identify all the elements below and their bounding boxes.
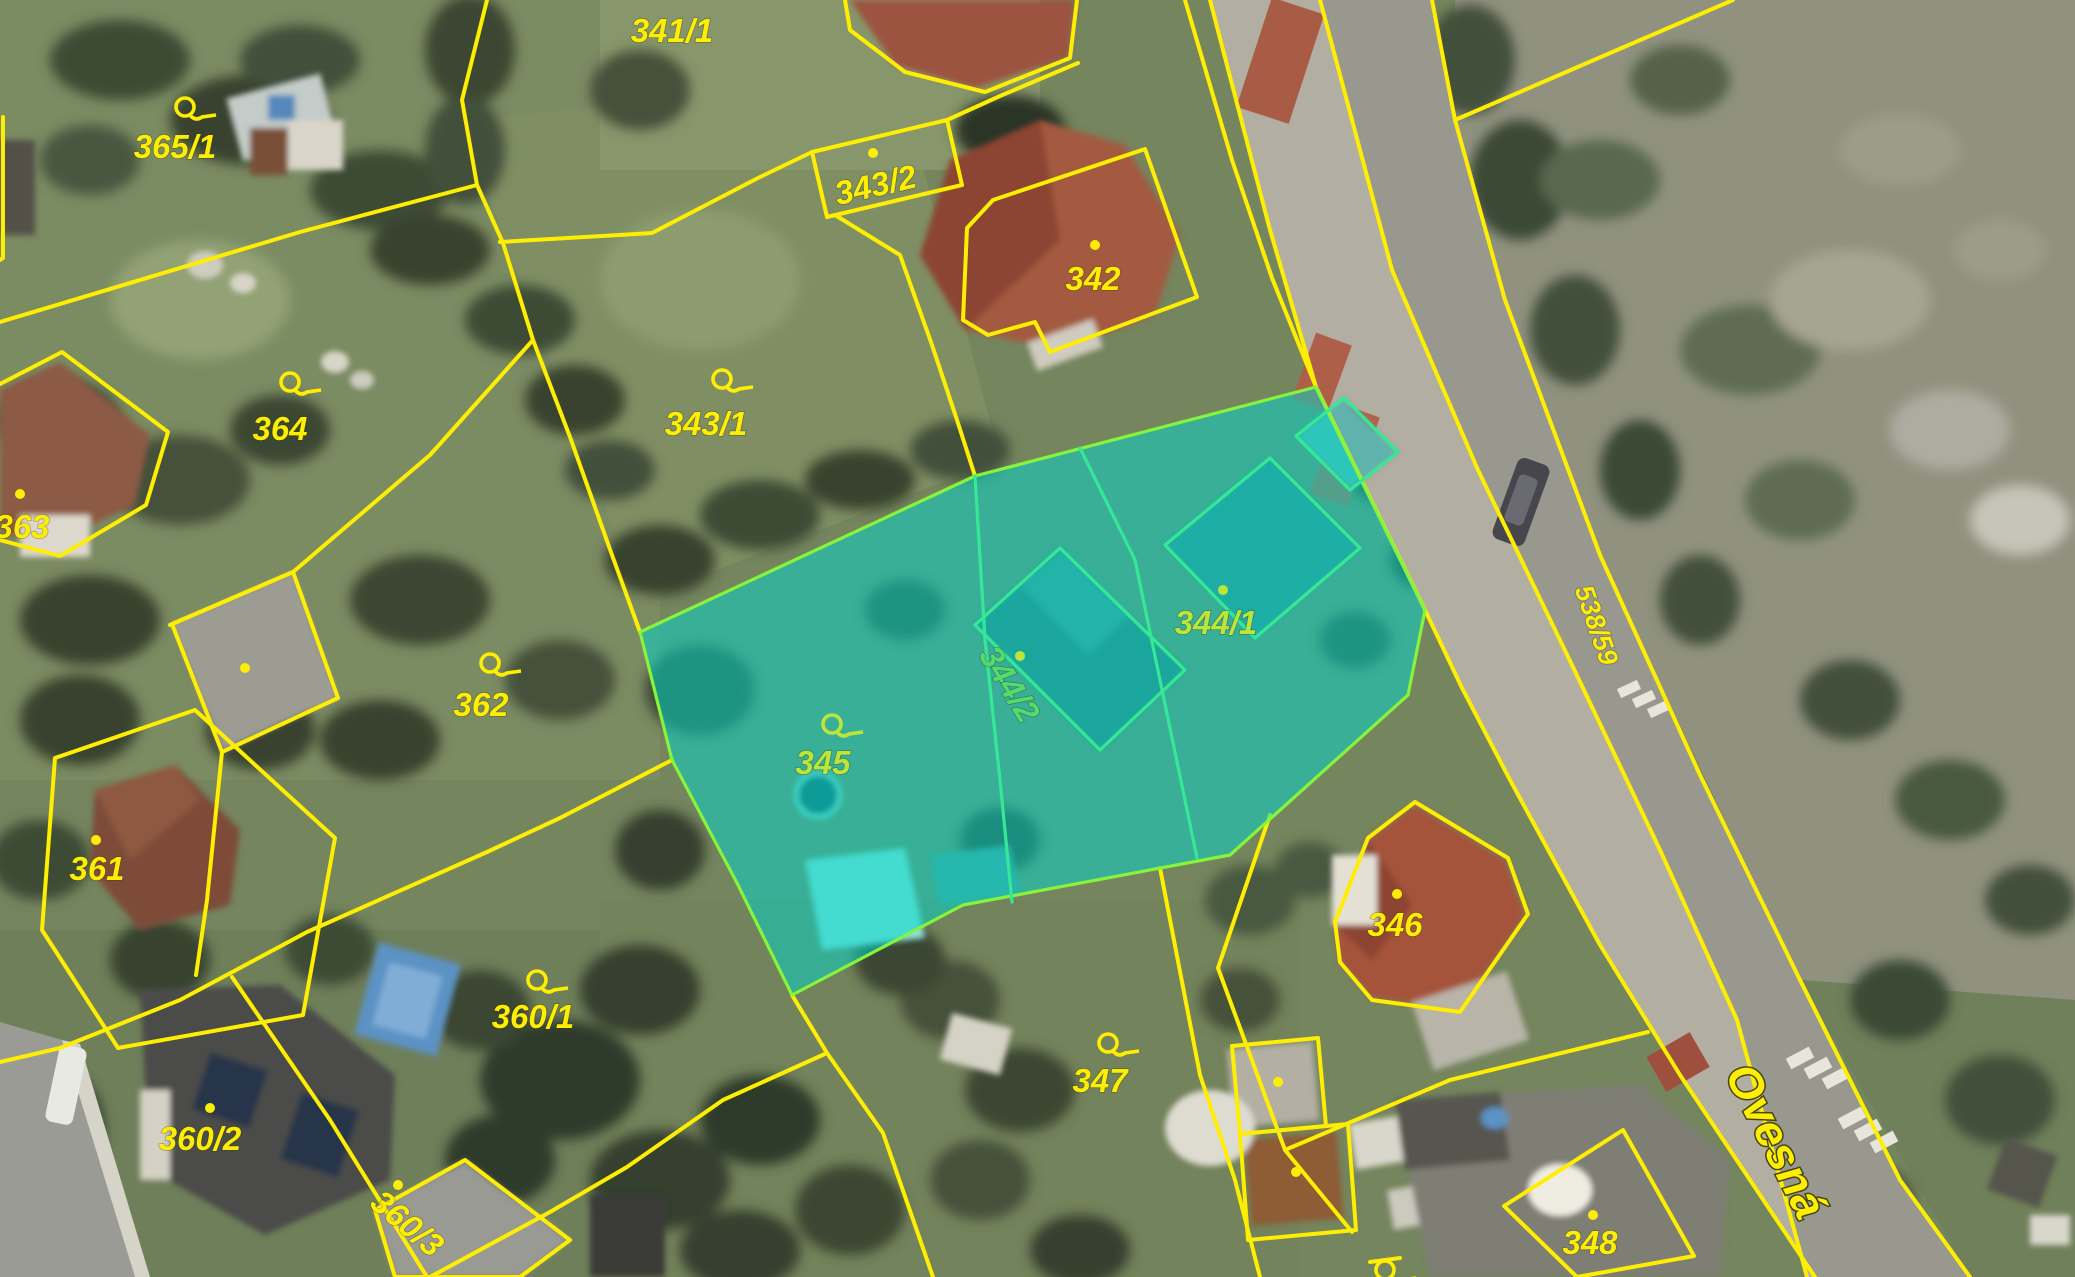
parcel-label: 345 bbox=[795, 744, 851, 781]
parcel-centroid-dot bbox=[1291, 1167, 1301, 1177]
parcel-centroid-dot bbox=[240, 663, 250, 673]
parcel-label: 347 bbox=[1072, 1062, 1129, 1099]
parcel-label: 365/1 bbox=[134, 128, 217, 165]
parcel-centroid-dot bbox=[1273, 1077, 1283, 1087]
parcel-centroid-dot bbox=[1218, 585, 1228, 595]
parcel-centroid-dot bbox=[1090, 240, 1100, 250]
map-canvas[interactable]: 365/1 341/1 343/2 342 364 343/1 363 362 … bbox=[0, 0, 2075, 1277]
parcel-centroid-dot bbox=[1588, 1210, 1598, 1220]
parcel-centroid-dot bbox=[1392, 889, 1402, 899]
parcel-label: 364 bbox=[252, 410, 307, 447]
parcel-label: 362 bbox=[453, 686, 509, 723]
parcel-label: 341/1 bbox=[631, 12, 714, 49]
parcel-label: 360/2 bbox=[159, 1120, 242, 1157]
parcel-label: 346 bbox=[1367, 906, 1423, 943]
map-viewport[interactable]: 365/1 341/1 343/2 342 364 343/1 363 362 … bbox=[0, 0, 2075, 1277]
parcel-centroid-dot bbox=[868, 148, 878, 158]
parcel-centroid-dot bbox=[15, 489, 25, 499]
parcel-label: 344/1 bbox=[1175, 604, 1258, 641]
parcel-label: 361 bbox=[69, 850, 124, 887]
parcel-label: 342 bbox=[1065, 260, 1121, 297]
parcel-centroid-dot bbox=[91, 835, 101, 845]
parcel-centroid-dot bbox=[205, 1103, 215, 1113]
parcel-label: 360/1 bbox=[492, 998, 575, 1035]
parcel-label: 363 bbox=[0, 508, 50, 545]
parcel-label: 343/1 bbox=[665, 405, 748, 442]
parcel-label: 348 bbox=[1562, 1224, 1618, 1261]
